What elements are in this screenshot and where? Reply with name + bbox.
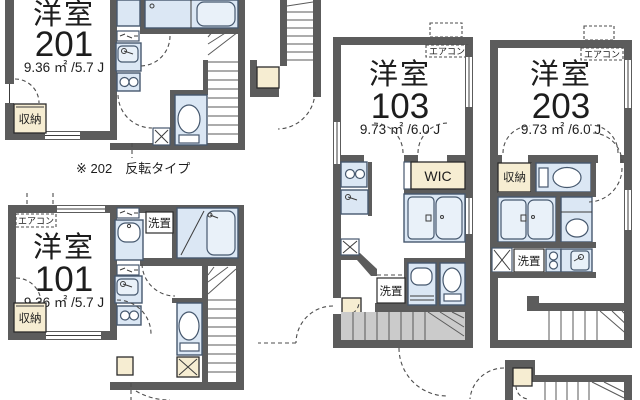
aircon-text: エアコン	[584, 50, 620, 60]
laundry-label: 洗置	[377, 275, 405, 303]
door-arc	[15, 79, 39, 103]
wall	[140, 258, 238, 266]
closet-label: 収納	[503, 171, 526, 184]
door-arc	[516, 386, 529, 399]
wall	[591, 163, 596, 192]
door-arc	[118, 95, 152, 128]
wall	[280, 0, 287, 66]
toilet-icon	[177, 303, 202, 355]
unit-103-plan: エアコン 洋室 103 9.73 ㎡ /6.0 J	[258, 23, 473, 396]
wic-label: WIC	[424, 168, 451, 184]
staircase	[208, 30, 238, 134]
wall	[527, 375, 632, 382]
wall	[203, 60, 208, 95]
toilet-icon	[175, 95, 207, 145]
wall	[140, 0, 145, 32]
x-box-icon	[153, 128, 170, 145]
bathtub-icon	[404, 194, 465, 242]
refrigerator-space	[117, 0, 140, 26]
aircon-text: エアコン	[18, 216, 54, 226]
kitchen-sink-icon	[341, 190, 368, 214]
stove-icon	[546, 249, 561, 272]
laundry-label: 洗置	[514, 249, 544, 272]
unit-103-number: 103	[371, 87, 429, 126]
staircase	[545, 382, 624, 400]
common-stairwell	[250, 0, 321, 129]
closet-box: 収納	[14, 104, 46, 133]
floor-plan-svg: 洋室 201 9.36 ㎡ /5.7 J 収納	[0, 0, 640, 400]
laundry-text: 洗置	[380, 285, 403, 298]
wall	[250, 60, 257, 97]
range-hood-icon	[117, 208, 139, 218]
range-hood-icon	[117, 265, 139, 275]
laundry-label: 洗置	[146, 212, 173, 233]
wall	[313, 0, 321, 97]
wall	[490, 40, 632, 48]
wall	[490, 340, 632, 348]
wall	[110, 382, 244, 390]
toilet-icon	[440, 263, 465, 305]
ac-outdoor-unit	[584, 26, 614, 40]
kitchen-sink-icon	[561, 249, 592, 272]
staircase	[208, 267, 236, 372]
kitchen-sink-icon	[115, 276, 142, 303]
wall	[490, 272, 596, 278]
wall	[333, 37, 473, 45]
ac-outdoor-unit	[430, 23, 462, 37]
wall	[490, 48, 498, 348]
unit-101-number: 101	[35, 260, 93, 299]
door-gap	[279, 88, 313, 97]
washbasin-icon	[408, 263, 436, 305]
entry-door-arc	[470, 368, 504, 399]
entry-door-arc	[258, 306, 333, 343]
bathtub-icon	[177, 208, 238, 258]
unit-203-area: 9.73 ㎡ /6.0 J	[521, 122, 601, 137]
unit-201-number: 201	[35, 25, 93, 64]
wall	[624, 382, 632, 400]
unit-201-area: 9.36 ㎡ /5.7 J	[24, 60, 104, 75]
aircon-text: エアコン	[429, 47, 465, 57]
unit-103-area: 9.73 ㎡ /6.0 J	[360, 122, 440, 137]
x-box-icon	[341, 239, 359, 255]
wall	[170, 95, 175, 147]
wall	[140, 28, 238, 34]
door-arc	[278, 92, 315, 129]
entry-step	[513, 368, 532, 386]
toilet-icon	[536, 163, 591, 192]
door-arc	[141, 36, 170, 66]
kitchen-sink-icon	[116, 43, 141, 71]
partial-unit-plan	[470, 360, 632, 400]
laundry-text: 洗置	[148, 217, 171, 230]
closet-label: 収納	[19, 113, 42, 126]
bathtub-icon	[498, 197, 556, 242]
note-202: ※ 202 反転タイプ	[76, 161, 190, 176]
washbasin-icon	[561, 197, 592, 242]
wall	[490, 242, 596, 248]
wall	[531, 163, 536, 192]
wall	[170, 90, 207, 95]
entry-step	[257, 67, 279, 88]
wic-box: WIC	[404, 162, 465, 189]
wall	[490, 155, 502, 163]
closet-label: 収納	[19, 312, 42, 325]
door-arc	[142, 264, 175, 296]
wall	[498, 192, 596, 197]
stove-icon	[117, 73, 140, 91]
floor-plan-canvas: 洋室 201 9.36 ㎡ /5.7 J 収納	[0, 0, 640, 400]
wall	[172, 298, 206, 303]
door-arc	[136, 391, 170, 400]
unit-201-plan: 洋室 201 9.36 ㎡ /5.7 J 収納	[5, 0, 245, 158]
entry-step	[117, 357, 199, 377]
wall	[333, 45, 341, 298]
staircase	[341, 312, 465, 340]
unit-203-number: 203	[532, 87, 590, 126]
wall	[202, 266, 208, 382]
aircon-label: エアコン	[16, 214, 56, 227]
bathtub-icon	[145, 0, 238, 28]
x-box-icon	[492, 248, 512, 272]
staircase	[287, 2, 313, 60]
wall	[404, 189, 465, 194]
unit-203-plan: エアコン 洋室 203 9.73 ㎡ /6.0 J 収納	[490, 26, 632, 348]
closet-box: 収納	[14, 303, 46, 332]
wall	[341, 253, 377, 276]
wall	[238, 0, 245, 150]
laundry-text: 洗置	[518, 255, 541, 268]
stove-icon	[341, 162, 367, 187]
range-hood-icon	[117, 31, 139, 41]
staircase	[527, 296, 632, 340]
closet-box: 収納	[498, 163, 531, 192]
wall	[5, 0, 14, 140]
washbasin-icon	[115, 220, 143, 260]
door-arc	[399, 348, 447, 396]
wall	[556, 197, 561, 242]
wall	[333, 340, 473, 348]
unit-101-plan: エアコン 洋室 101 9.36 ㎡ /5.7 J 洗置	[8, 205, 244, 400]
aircon-label: エアコン	[426, 45, 468, 57]
stove-icon	[117, 306, 141, 325]
wall	[528, 155, 598, 163]
